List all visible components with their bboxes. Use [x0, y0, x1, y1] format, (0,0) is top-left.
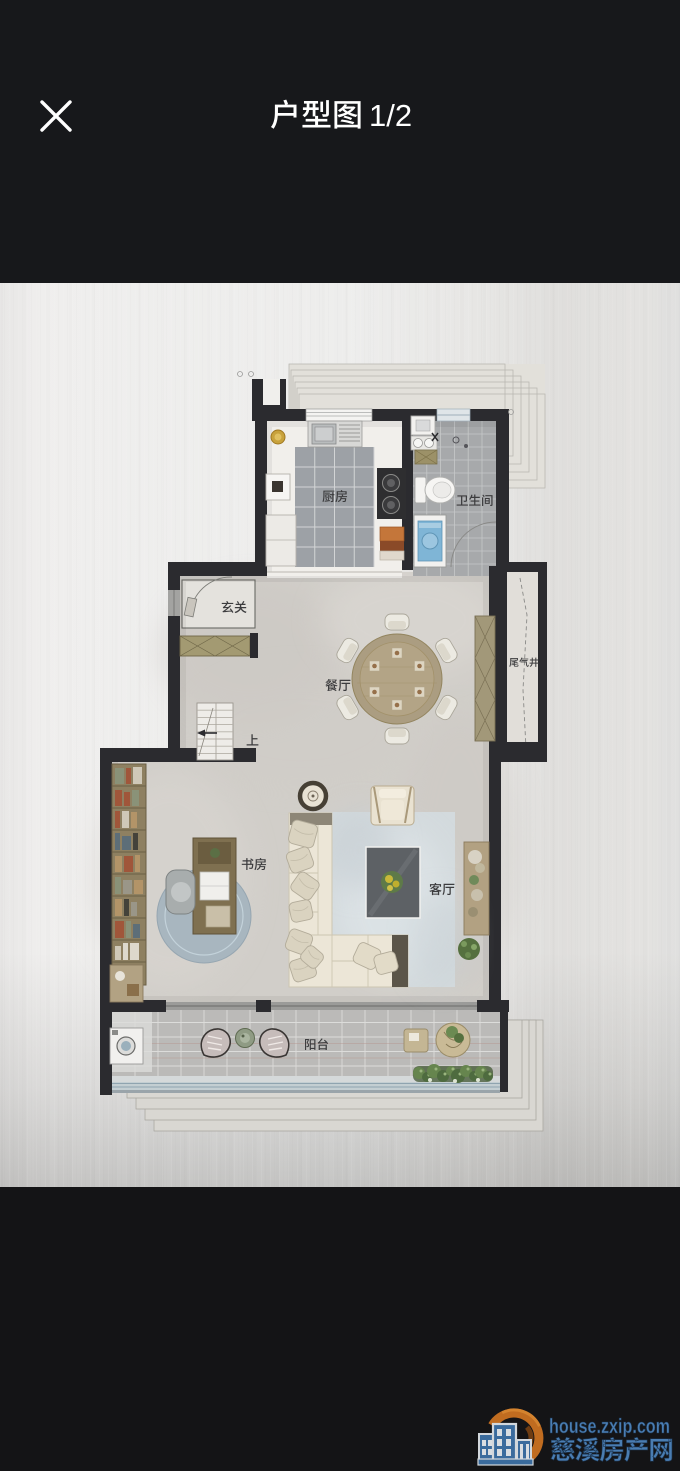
svg-text:house.zxip.com: house.zxip.com [549, 1416, 670, 1438]
svg-text:1/2: 1/2 [369, 98, 412, 133]
